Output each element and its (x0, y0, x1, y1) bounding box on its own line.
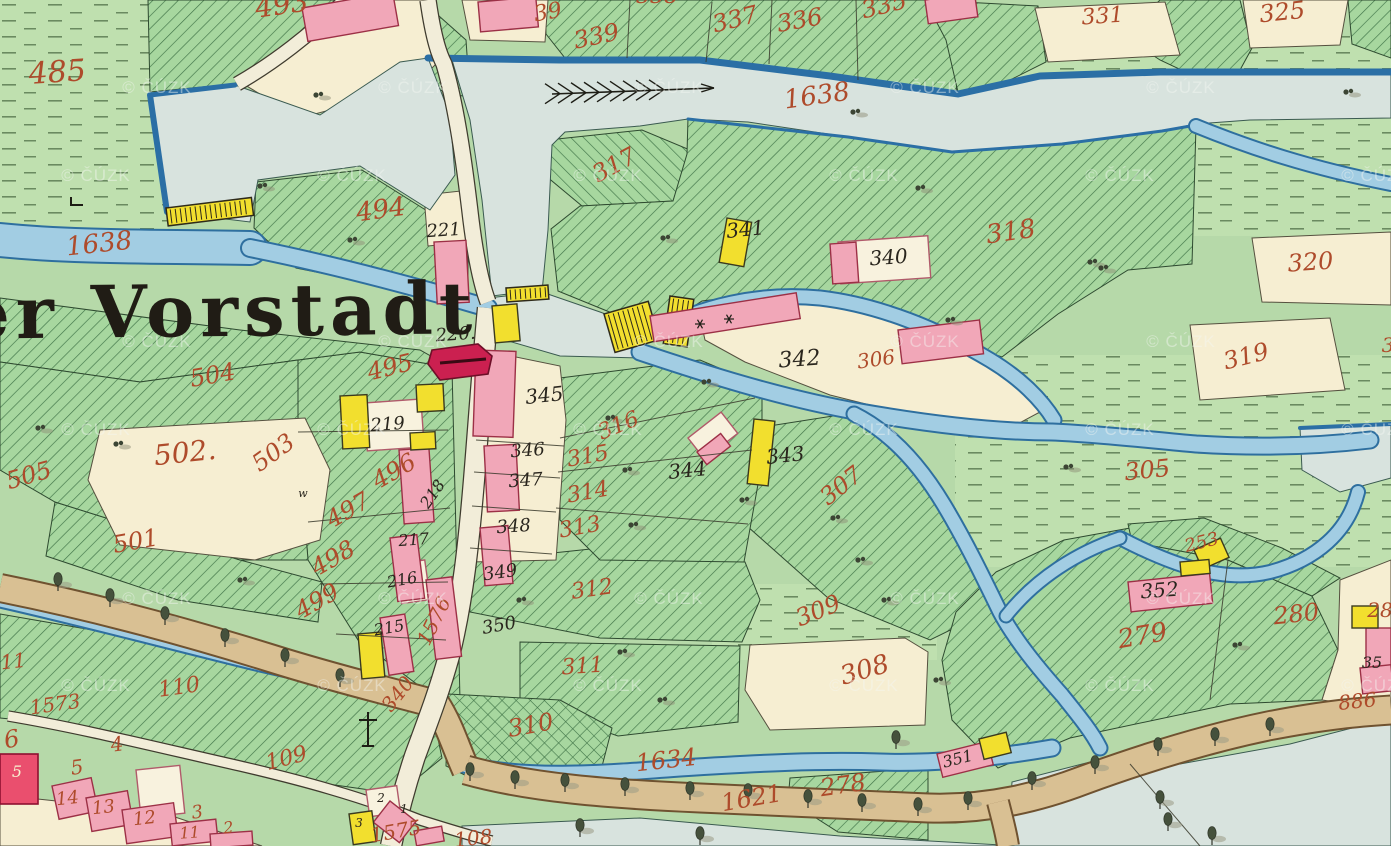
parcel-label-217: 217 (397, 529, 431, 550)
watermark: © ČÚZK (573, 420, 643, 439)
watermark: © ČÚZK (122, 589, 192, 608)
building-pink (830, 242, 859, 284)
watermark: © ČÚZK (1341, 166, 1391, 185)
parcel-label-320: 320 (1287, 246, 1335, 277)
parcel-label-331: 331 (1081, 3, 1125, 31)
cadastral-map: 4854931638494339393383373363353313251638… (0, 0, 1391, 846)
parcel-label-485: 485 (27, 53, 88, 92)
parcel-label-502.: 502. (152, 433, 217, 472)
parcel-label-2: 2 (221, 818, 234, 838)
building-yellow (410, 432, 436, 450)
watermark: © ČÚZK (61, 166, 131, 185)
watermark: © ČÚZK (890, 78, 960, 97)
parcel-label-13: 13 (91, 796, 116, 819)
parcel-label-325: 325 (1258, 0, 1306, 28)
watermark: © ČÚZK (378, 332, 448, 351)
watermark: © ČÚZK (890, 589, 960, 608)
watermark: © ČÚZK (1146, 589, 1216, 608)
watermark: © ČÚZK (829, 676, 899, 695)
building-yellow (492, 304, 520, 343)
parcel-label-39: 39 (532, 0, 564, 27)
building-pink (478, 0, 538, 32)
watermark: © ČÚZK (634, 589, 704, 608)
parcel-label-347: 347 (508, 469, 544, 492)
watermark: © ČÚZK (890, 332, 960, 351)
watermark: © ČÚZK (1341, 420, 1391, 439)
watermark: © ČÚZK (634, 332, 704, 351)
parcel-label-3: 3 (1382, 333, 1391, 357)
parcel-label-2: 2 (376, 791, 385, 805)
building-yellow (416, 384, 444, 412)
watermark: © ČÚZK (1341, 676, 1391, 695)
parcel-label-35: 35 (1362, 653, 1382, 672)
watermark: © ČÚZK (1085, 420, 1155, 439)
parcel-label-341: 341 (725, 215, 765, 243)
watermark: © ČÚZK (829, 420, 899, 439)
watermark: © ČÚZK (1146, 78, 1216, 97)
building-yellow (1180, 559, 1210, 575)
parcel-label-11: 11 (0, 648, 27, 675)
parcel-label-343: 343 (765, 441, 805, 469)
parcel-label-344: 344 (667, 456, 707, 484)
parcel-label-12: 12 (132, 807, 157, 830)
watermark: © ČÚZK (378, 589, 448, 608)
parcel-label-108: 108 (453, 824, 493, 846)
watermark: © ČÚZK (573, 166, 643, 185)
parcel-label-14: 14 (55, 787, 80, 810)
watermark: © ČÚZK (1085, 166, 1155, 185)
watermark: © ČÚZK (634, 78, 704, 97)
watermark: © ČÚZK (61, 420, 131, 439)
parcel-label-342: 342 (778, 346, 822, 374)
watermark: © ČÚZK (317, 166, 387, 185)
watermark: © ČÚZK (317, 676, 387, 695)
watermark: © ČÚZK (317, 420, 387, 439)
parcel-label-11: 11 (179, 822, 201, 842)
parcel-label-28: 28 (1366, 598, 1391, 622)
parcel-label-340: 340 (869, 244, 909, 271)
watermark: © ČÚZK (122, 332, 192, 351)
parcel-label-348: 348 (496, 515, 532, 538)
parcel-label-5: 5 (12, 762, 22, 781)
watermark: © ČÚZK (122, 78, 192, 97)
parcel-label-280: 280 (1271, 598, 1320, 631)
meadow (0, 0, 168, 238)
map-viewport: 4854931638494339393383373363353313251638… (0, 0, 1391, 846)
watermark: © ČÚZK (573, 676, 643, 695)
parcel-label-305: 305 (1123, 454, 1171, 487)
watermark: © ČÚZK (61, 676, 131, 695)
bridge (506, 285, 549, 302)
parcel-label-345: 345 (524, 381, 564, 409)
road (998, 802, 1008, 846)
watermark: © ČÚZK (829, 166, 899, 185)
parcel-label-346: 346 (510, 439, 546, 462)
light-labels-layer: 5 (12, 762, 22, 781)
watermark: © ČÚZK (1085, 676, 1155, 695)
watermark: © ČÚZK (1146, 332, 1216, 351)
parcel-label-3: 3 (355, 816, 363, 830)
watermark: © ČÚZK (378, 78, 448, 97)
parcel-label-1: 1 (400, 802, 408, 816)
building-yellow (358, 632, 385, 679)
building-pink (434, 240, 469, 304)
parcel-label-w: w (298, 487, 308, 500)
parcel-label-221: 221 (425, 219, 462, 242)
parcel-label-338: 338 (636, 0, 678, 9)
